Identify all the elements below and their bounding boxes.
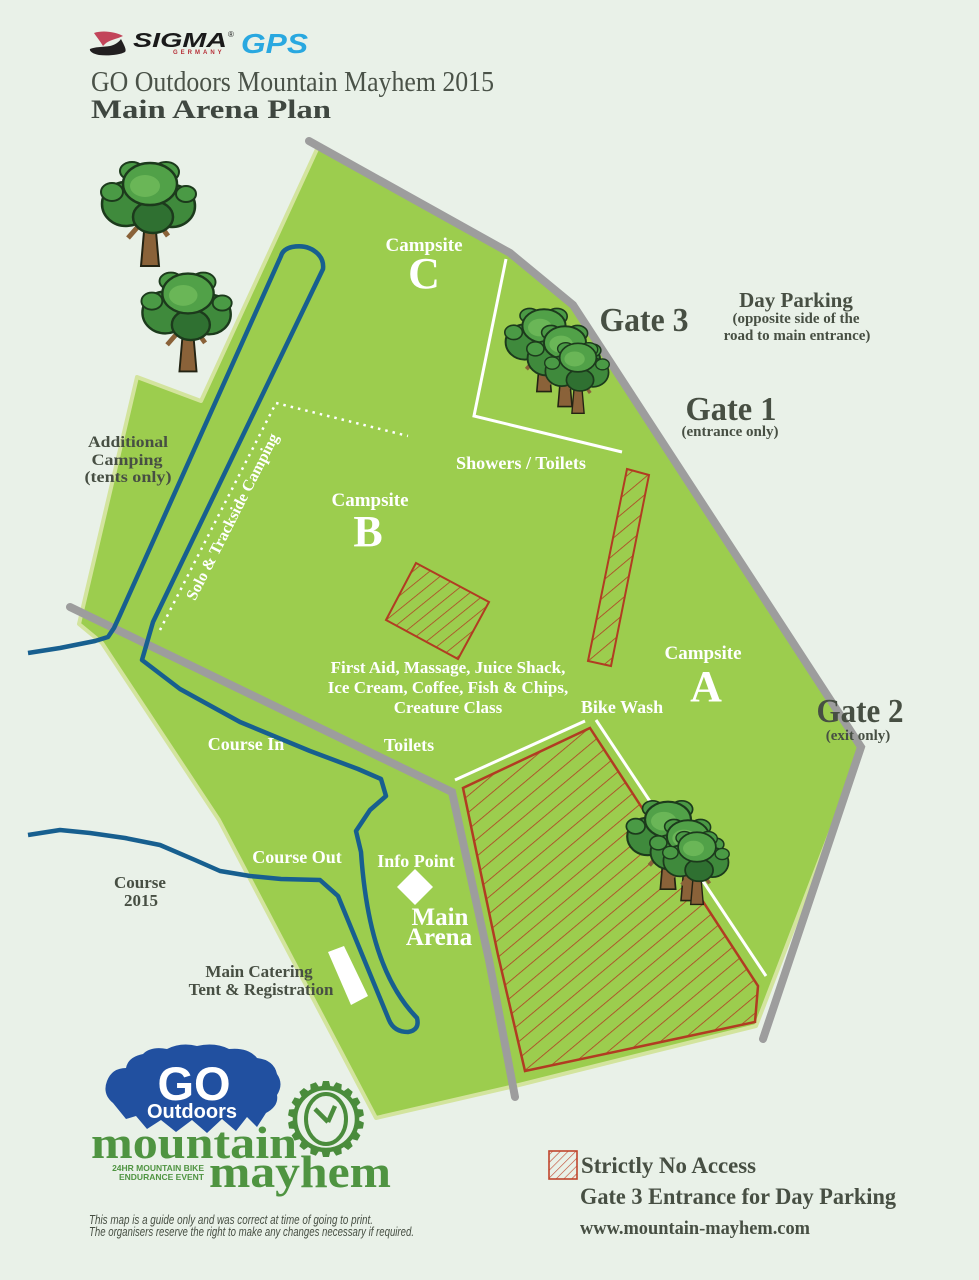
svg-text:C: C (408, 249, 440, 298)
svg-text:Bike Wash: Bike Wash (581, 697, 663, 717)
svg-text:GERMANY: GERMANY (173, 50, 225, 56)
svg-text:Gate 3 Entrance for Day Parkin: Gate 3 Entrance for Day Parking (580, 1184, 896, 1209)
svg-text:Course: Course (114, 873, 166, 892)
svg-text:Main Arena Plan: Main Arena Plan (91, 95, 332, 124)
svg-text:Strictly No Access: Strictly No Access (581, 1153, 756, 1178)
svg-text:SIGMA: SIGMA (133, 30, 227, 52)
svg-text:2015: 2015 (124, 891, 158, 910)
svg-text:Ice Cream, Coffee, Fish & Chip: Ice Cream, Coffee, Fish & Chips, (328, 678, 568, 697)
svg-text:Day Parking: Day Parking (739, 288, 853, 312)
svg-text:(opposite side of the: (opposite side of the (732, 311, 859, 327)
svg-text:Toilets: Toilets (384, 735, 434, 755)
svg-text:Camping: Camping (92, 452, 163, 469)
svg-text:B: B (353, 507, 382, 556)
svg-text:Course In: Course In (208, 734, 285, 754)
svg-text:Gate 3: Gate 3 (600, 302, 689, 339)
svg-text:(tents only): (tents only) (85, 469, 172, 486)
svg-text:www.mountain-mayhem.com: www.mountain-mayhem.com (580, 1218, 810, 1239)
svg-text:road to main entrance): road to main entrance) (724, 328, 871, 344)
svg-text:GPS: GPS (241, 28, 308, 59)
svg-text:Campsite: Campsite (664, 643, 741, 664)
svg-text:Gate 1: Gate 1 (686, 391, 777, 428)
svg-text:Creature Class: Creature Class (394, 698, 503, 717)
svg-text:mayhem: mayhem (209, 1146, 391, 1197)
svg-text:ENDURANCE EVENT: ENDURANCE EVENT (119, 1172, 205, 1182)
svg-text:Showers / Toilets: Showers / Toilets (456, 453, 586, 473)
svg-text:Main Catering: Main Catering (205, 962, 313, 981)
svg-text:Course Out: Course Out (252, 847, 342, 867)
svg-text:Info Point: Info Point (377, 851, 455, 871)
svg-text:Additional: Additional (88, 434, 169, 451)
svg-text:The organisers reserve the rig: The organisers reserve the right to make… (89, 1225, 414, 1239)
svg-text:First Aid, Massage, Juice Shac: First Aid, Massage, Juice Shack, (331, 658, 566, 677)
svg-text:®: ® (228, 30, 234, 39)
svg-text:Gate 2: Gate 2 (817, 693, 904, 730)
svg-text:GO Outdoors Mountain Mayhem 20: GO Outdoors Mountain Mayhem 2015 (91, 67, 494, 98)
svg-text:(exit only): (exit only) (826, 728, 891, 744)
svg-text:A: A (690, 662, 722, 711)
svg-text:(entrance only): (entrance only) (681, 424, 778, 440)
svg-text:Arena: Arena (406, 924, 473, 951)
svg-text:Tent & Registration: Tent & Registration (189, 980, 334, 999)
